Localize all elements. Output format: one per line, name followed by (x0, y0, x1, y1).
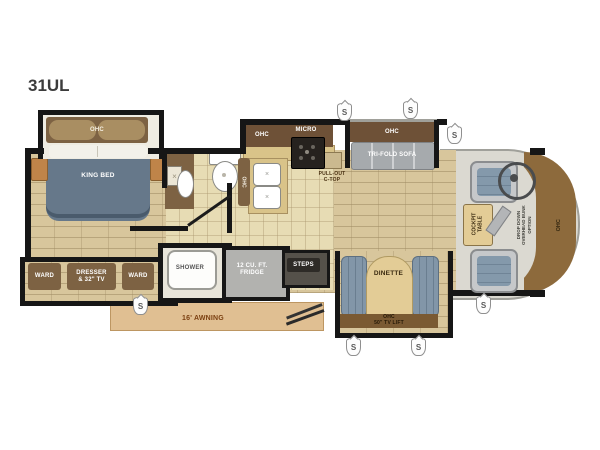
speaker-icon-3: S (447, 126, 462, 144)
pantry-ohc-label: OHC (241, 176, 247, 187)
sofa-slide-wall-left (345, 120, 350, 168)
model-title: 31UL (28, 76, 70, 96)
bed-pillows (49, 145, 147, 158)
bed-pillow-divider (97, 146, 98, 157)
range-burners (299, 145, 303, 149)
bunk-option-label: DROP DOWN OVERHEAD BUNK OPTION (516, 205, 532, 245)
tri-fold-sofa-label: TRI-FOLD SOFA (351, 142, 433, 168)
cockpit-table-label: COCKPIT TABLE (471, 213, 483, 236)
floorplan-canvas: 31UL OHC OHC KING BED WARD DRESSER & 32"… (0, 0, 600, 450)
steering-wheel-hub (510, 174, 518, 182)
galley-sink-lower: × (253, 186, 281, 209)
speaker-icon-5: S (346, 338, 361, 356)
micro-label: MICRO (286, 123, 326, 137)
speaker-label-4: S (138, 302, 143, 311)
speaker-icon-7: S (476, 296, 491, 314)
speaker-label-1: S (342, 108, 347, 117)
pullout-ctop-label: PULL-OUT C-TOP (310, 170, 354, 186)
speaker-label-3: S (452, 131, 457, 140)
sofa-slide-outer-edge (348, 119, 439, 122)
ward-left-label: WARD (28, 263, 61, 290)
toilet-seat-dot (222, 173, 226, 177)
cab-joint-block-top (530, 148, 545, 155)
bunk-option-label-wrap: DROP DOWN OVERHEAD BUNK OPTION (503, 196, 545, 254)
speaker-icon-4: S (133, 297, 148, 315)
sofa-ohc-label: OHC (350, 122, 434, 142)
dinette-ohc-label: OHC 50" TV LIFT (340, 314, 438, 328)
speaker-icon-2: S (403, 101, 418, 119)
partition-bed-bath (162, 150, 167, 188)
galley-ohc-label: OHC (245, 126, 279, 144)
pantry-ohc-label-wrap: OHC (238, 158, 250, 206)
speaker-label-5: S (351, 343, 356, 352)
range-cooktop (291, 137, 325, 169)
front-cap-ohc-label-wrap: OHC (546, 195, 572, 255)
dinette-label: DINETTE (364, 268, 413, 280)
speaker-label-6: S (416, 343, 421, 352)
wall-top-right-a (240, 119, 350, 125)
partition-hall (130, 226, 188, 231)
passenger-seat-cushion (477, 256, 511, 286)
passenger-seat (470, 249, 518, 293)
ward-right-label: WARD (122, 263, 154, 290)
sofa-slide-wall-right (434, 120, 439, 168)
vanity-sink (177, 170, 194, 198)
bedroom-ohc-label: OHC (46, 120, 148, 140)
dinette-bench-right (412, 256, 439, 317)
shower-label: SHOWER (167, 250, 213, 286)
galley-sink-upper: × (253, 163, 281, 186)
awning-label: 16' AWNING (128, 313, 278, 325)
speaker-icon-1: S (337, 103, 352, 121)
speaker-label-2: S (408, 106, 413, 115)
cockpit-table-label-wrap: COCKPIT TABLE (463, 204, 491, 244)
cab-joint-block-bottom (530, 290, 545, 297)
steering-wheel (498, 162, 536, 200)
speaker-label-7: S (481, 301, 486, 310)
fridge-label: 12 CU. FT. FRIDGE (222, 246, 282, 293)
king-bed-label: KING BED (46, 170, 150, 182)
steps-label: STEPS (287, 258, 320, 272)
speaker-icon-6: S (411, 338, 426, 356)
dinette-table (366, 256, 413, 320)
dresser-tv-label: DRESSER & 32" TV (67, 263, 116, 290)
partition-bath-galley (227, 183, 232, 233)
front-cap-ohc-label: OHC (556, 219, 563, 231)
dinette-bench-left (341, 256, 367, 317)
wall-top-left-a (25, 148, 44, 154)
